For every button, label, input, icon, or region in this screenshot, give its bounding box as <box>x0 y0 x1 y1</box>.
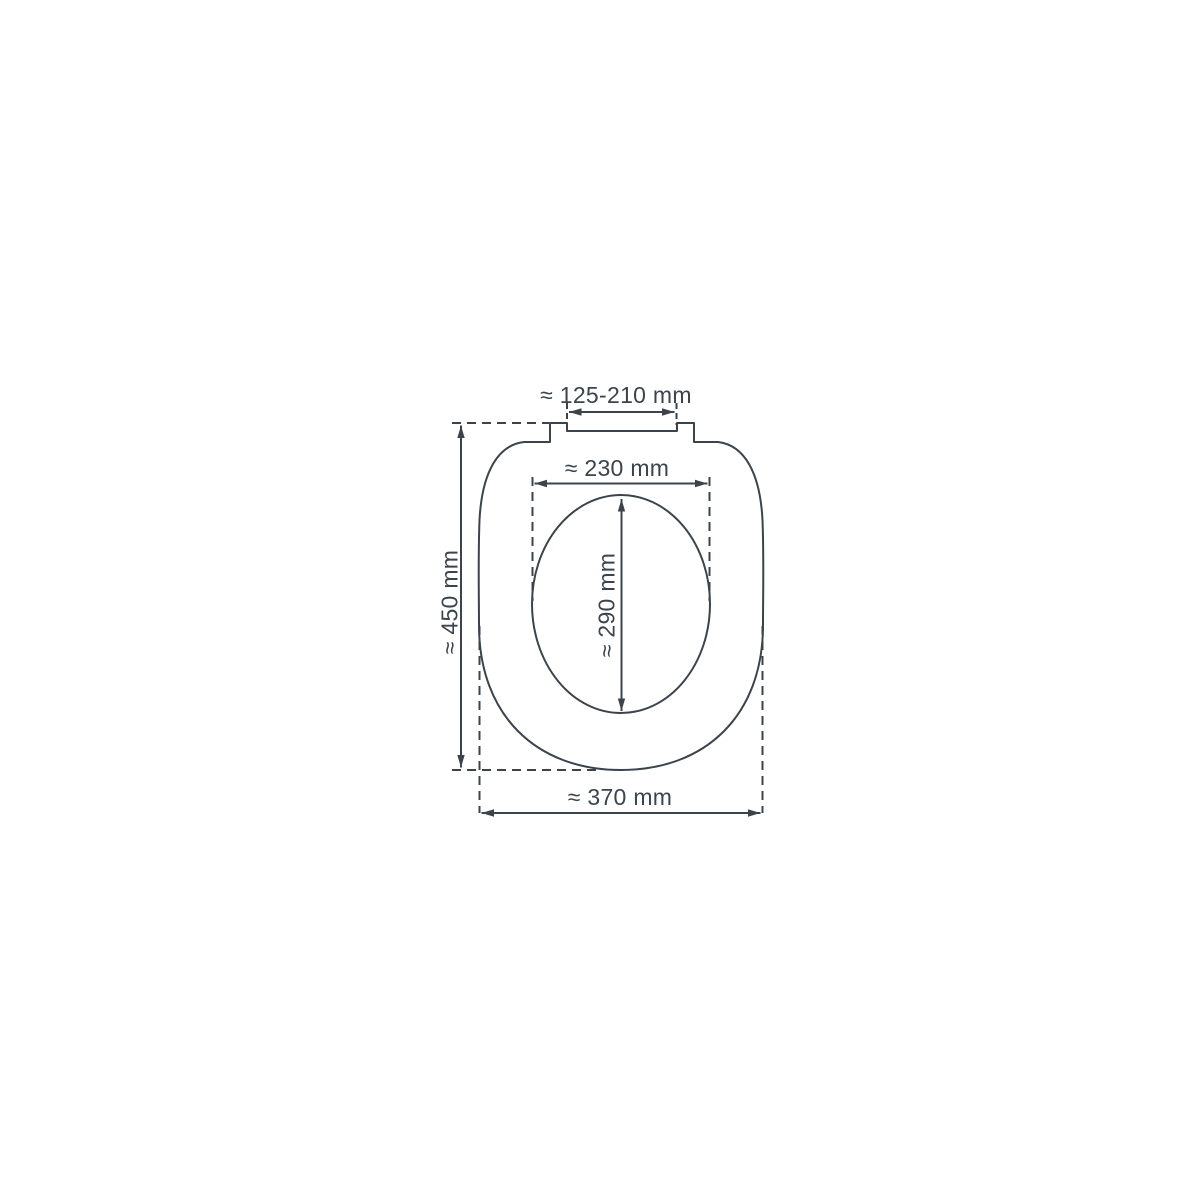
toilet-seat-dimension-diagram: ≈ 125-210 mm ≈ 230 mm ≈ 290 mm ≈ 450 mm … <box>0 0 1200 1200</box>
inner-length-label: ≈ 290 mm <box>594 553 620 658</box>
diagram-canvas: ≈ 125-210 mm ≈ 230 mm ≈ 290 mm ≈ 450 mm … <box>0 0 1200 1200</box>
inner-width-label: ≈ 230 mm <box>565 455 670 481</box>
hinge-width-label: ≈ 125-210 mm <box>540 382 692 408</box>
outer-width-label: ≈ 370 mm <box>568 784 673 810</box>
dimension-inner-length: ≈ 290 mm <box>594 499 622 711</box>
outer-length-label: ≈ 450 mm <box>437 550 463 655</box>
dimension-hinge-width: ≈ 125-210 mm <box>540 382 692 425</box>
